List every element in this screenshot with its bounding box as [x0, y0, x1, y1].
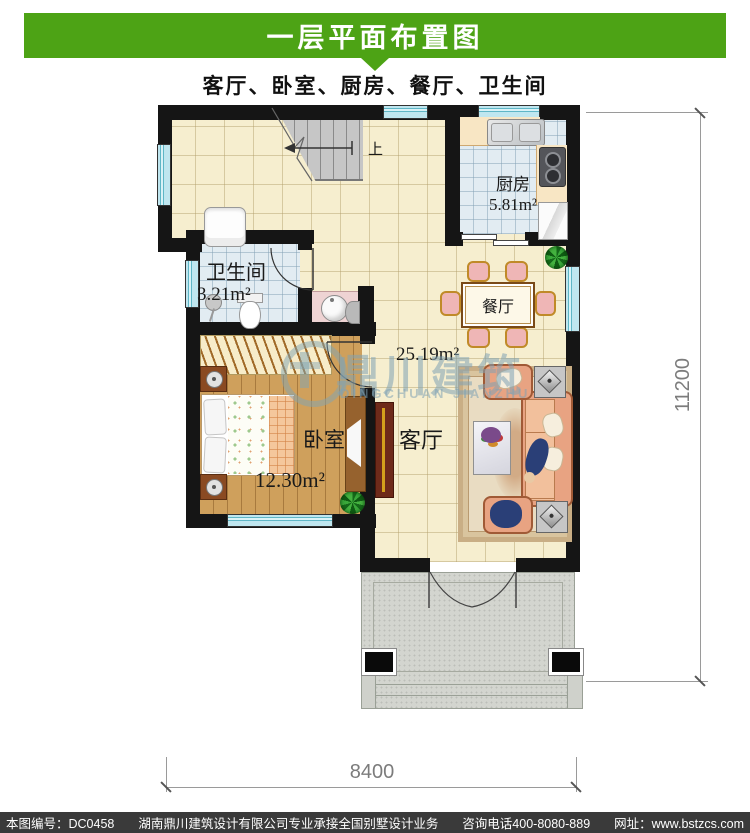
- dining-chair: [467, 261, 490, 282]
- kitchen-sink: [487, 119, 545, 146]
- plant-icon: [545, 246, 568, 269]
- towel-rack: [345, 301, 360, 324]
- side-table: [536, 501, 568, 533]
- tv-screen: [382, 408, 385, 492]
- lamp-icon: [539, 504, 563, 528]
- dining-chair: [535, 291, 556, 316]
- nightstand: [200, 474, 227, 500]
- porch-panel-line: [373, 582, 563, 672]
- dimension-height: 11200: [672, 358, 695, 412]
- porch-column-right: [549, 649, 583, 675]
- kitchen-label: 厨房: [461, 170, 565, 195]
- pillow: [203, 398, 227, 435]
- porch-column-left: [362, 649, 396, 675]
- sliding-door-panel: [493, 240, 529, 246]
- watermark-logo-bar: [300, 352, 309, 388]
- burner-icon: [545, 152, 561, 168]
- side-table: [534, 366, 566, 398]
- wall-nook-right: [358, 286, 374, 336]
- sliding-door-panel: [461, 234, 497, 240]
- watermark-logo-bar: [290, 362, 320, 369]
- dining-room-label: 餐厅: [482, 293, 514, 317]
- watermark-en: DINGCHUAN JIANZHU: [340, 386, 530, 401]
- flower-vase: [481, 427, 501, 443]
- outside-mask-bottom-left: [150, 528, 361, 574]
- living-label: 客厅: [399, 423, 443, 455]
- wall-bottom-left: [360, 558, 430, 572]
- bathroom-label: 卫生间: [206, 256, 266, 285]
- bathroom-area-label: 3.21m²: [197, 284, 251, 306]
- phone-number: 咨询电话400-8080-889: [462, 813, 590, 832]
- dimension-width: 8400: [336, 761, 408, 784]
- stairs-up-label: 上: [368, 138, 383, 159]
- porch-post-left: [361, 674, 376, 709]
- dimension-line-bottom: [166, 787, 576, 788]
- extension-line-top: [586, 112, 708, 113]
- bedroom-label: 卧室: [303, 424, 345, 454]
- website-url: 网址：www.bstzcs.com: [614, 813, 744, 832]
- pillow: [203, 436, 227, 473]
- dining-table: 餐厅: [461, 282, 535, 328]
- company-name: 湖南鼎川建筑设计有限公司专业承接全国别墅设计业务: [138, 813, 438, 832]
- bed-plaid-throw: [269, 396, 294, 474]
- dining-chair: [440, 291, 461, 316]
- dining-chair: [505, 261, 528, 282]
- room-list-subtitle: 客厅、卧室、厨房、餐厅、卫生间: [0, 70, 750, 100]
- wall-kitchen-left: [445, 105, 460, 235]
- porch-post-right: [567, 674, 583, 709]
- double-bed: [201, 394, 295, 476]
- page-title: 一层平面布置图: [267, 16, 484, 55]
- dimension-line-right: [700, 113, 701, 682]
- plan-number: 本图编号：DC0458: [6, 813, 114, 832]
- plant-icon: [340, 491, 365, 514]
- lamp-icon: [206, 479, 223, 496]
- lamp-icon: [537, 369, 561, 393]
- porch-step-line: [373, 695, 571, 696]
- extension-line-bottom: [586, 681, 708, 682]
- lamp-icon: [206, 371, 223, 388]
- footer-bar: 本图编号：DC0458 湖南鼎川建筑设计有限公司专业承接全国别墅设计业务 咨询电…: [0, 812, 750, 833]
- person-head: [524, 472, 535, 483]
- wall-bedroom-left: [186, 320, 200, 528]
- kitchen-area-label: 5.81m²: [461, 195, 565, 215]
- wall-bathroom-right-a: [298, 230, 312, 250]
- porch-steps: [373, 684, 573, 709]
- water-heater: [204, 207, 246, 247]
- faucet-icon: [330, 298, 334, 302]
- wall-bedroom-top: [186, 322, 376, 336]
- washbasin: [321, 295, 348, 322]
- duvet: [228, 396, 269, 474]
- window-bedroom: [227, 514, 333, 527]
- window-top-hall: [383, 105, 428, 119]
- floor-plan-page: 一层平面布置图 客厅、卧室、厨房、餐厅、卫生间: [0, 0, 750, 833]
- window-left-hall: [157, 144, 171, 206]
- title-bar: 一层平面布置图: [24, 13, 726, 58]
- nightstand: [200, 366, 227, 392]
- window-dining: [565, 266, 580, 332]
- wall-bottom-right: [516, 558, 580, 572]
- bedroom-area-label: 12.30m²: [255, 468, 325, 493]
- person-sitting: [490, 500, 522, 528]
